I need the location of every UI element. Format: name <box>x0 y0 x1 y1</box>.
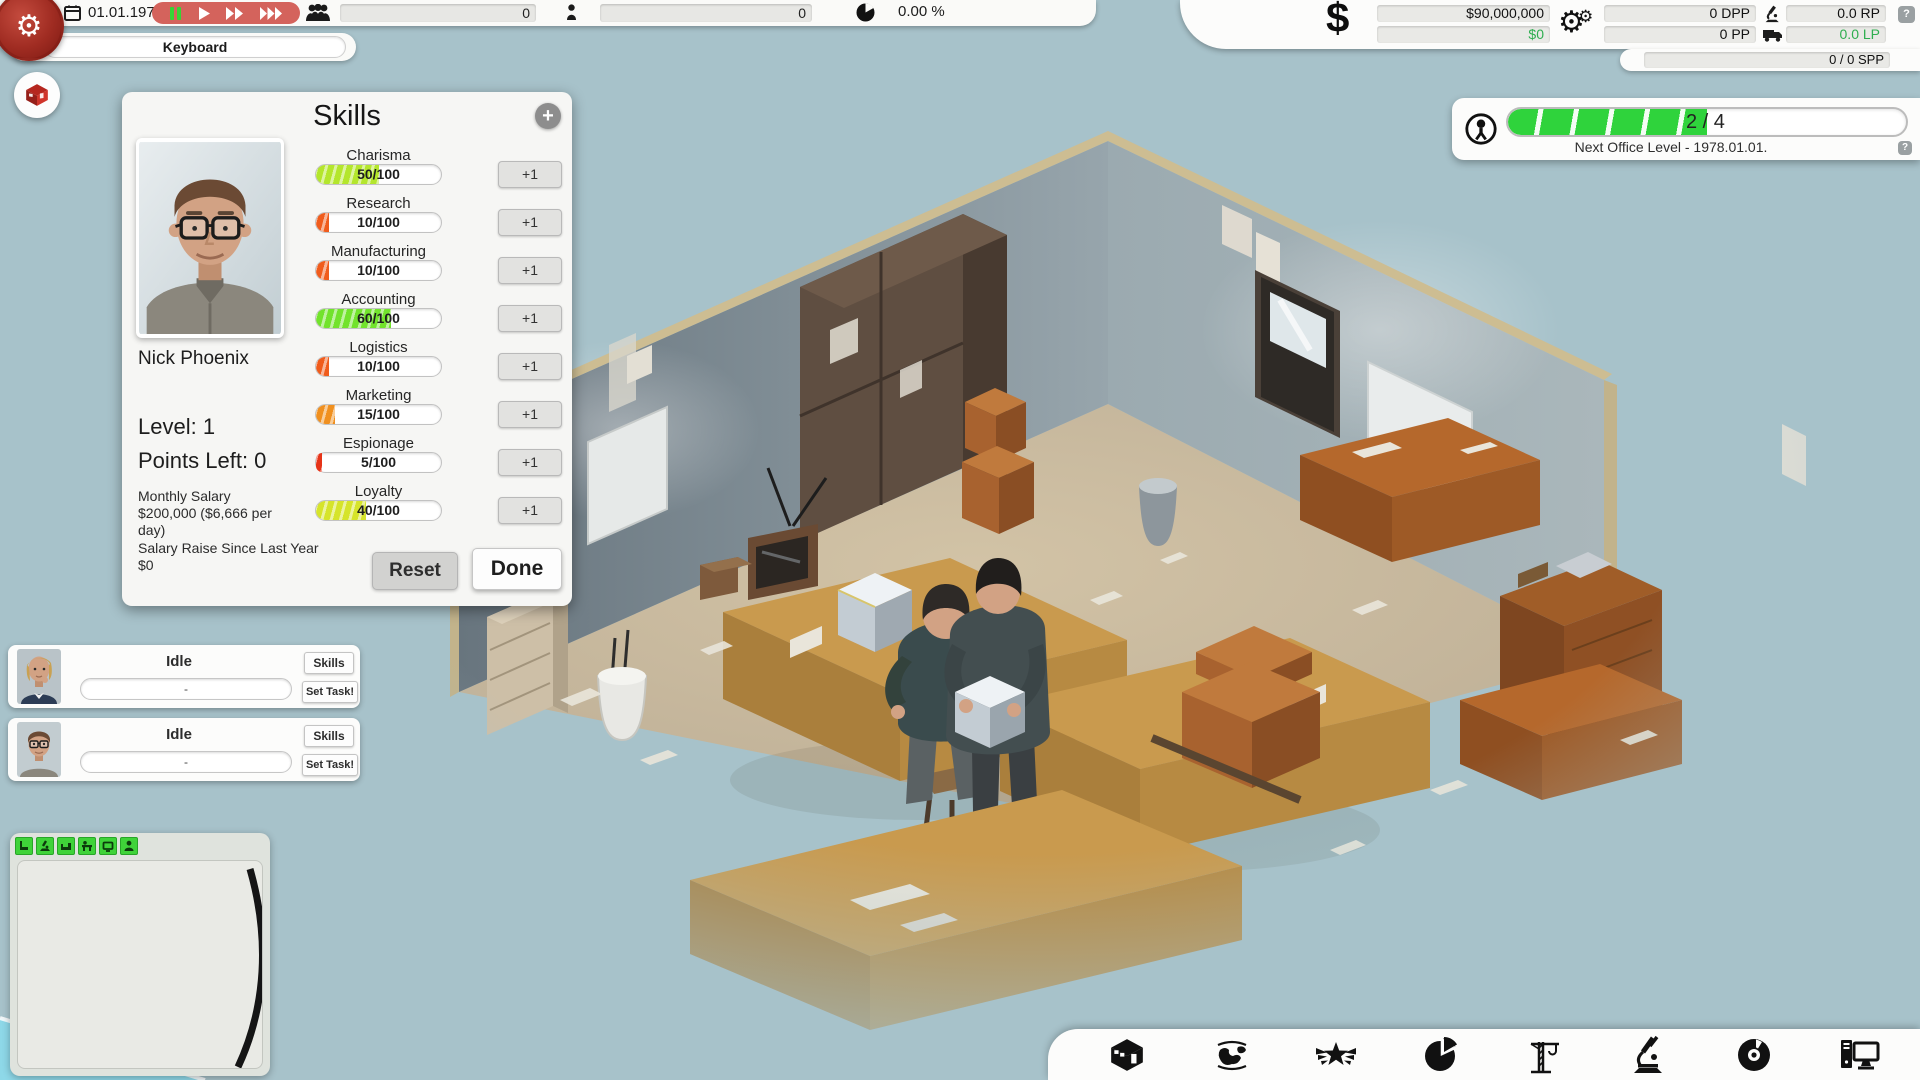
employee-avatar <box>17 649 61 704</box>
skill-name: Accounting <box>315 291 442 308</box>
spp-strip: 0 / 0 SPP <box>1620 49 1920 71</box>
skill-row: Charisma 50/100 +1 <box>122 147 572 193</box>
minimap-furniture-icon[interactable] <box>15 837 33 855</box>
office-level-progress-fill <box>1508 109 1707 135</box>
set-task-button[interactable]: Set Task! <box>302 754 358 776</box>
skill-increment-button[interactable]: +1 <box>498 305 562 332</box>
dock-world-map-button[interactable] <box>1211 1034 1253 1076</box>
skill-increment-button[interactable]: +1 <box>498 257 562 284</box>
next-office-level-text: Next Office Level - 1978.01.01. <box>1452 139 1890 155</box>
pie-chart-icon <box>1422 1036 1460 1074</box>
gear-icon: ⚙ <box>16 9 43 44</box>
rp-field: 0.0 RP <box>1786 5 1886 22</box>
salary-raise-block: Salary Raise Since Last Year $0 <box>138 540 368 574</box>
bottom-dock <box>1048 1029 1920 1080</box>
time-control-bar: 01.01.1972 0 0 0.00 % <box>0 0 1096 26</box>
skill-name: Logistics <box>315 339 442 356</box>
skill-row: Manufacturing 10/100 +1 <box>122 243 572 289</box>
skill-bar: 5/100 <box>315 452 442 473</box>
office-level-panel: 2 / 4 Next Office Level - 1978.01.01. ? <box>1452 98 1920 160</box>
play-button[interactable] <box>198 7 210 20</box>
skill-increment-button[interactable]: +1 <box>498 209 562 236</box>
skill-bar: 10/100 <box>315 260 442 281</box>
skill-increment-button[interactable]: +1 <box>498 497 562 524</box>
skill-bar: 60/100 <box>315 308 442 329</box>
employee-count-field: 0 <box>340 4 536 22</box>
skills-panel-title: Skills <box>122 100 572 133</box>
minimap-staff-icon[interactable] <box>120 837 138 855</box>
done-button[interactable]: Done <box>472 548 562 590</box>
dock-company-button[interactable] <box>1106 1034 1148 1076</box>
skill-name: Marketing <box>315 387 442 404</box>
minimap-view[interactable] <box>17 860 263 1069</box>
gears-icon: ⚙⚙ <box>1558 8 1585 38</box>
minimap-research-icon[interactable] <box>36 837 54 855</box>
salary-raise-label: Salary Raise Since Last Year <box>138 540 368 557</box>
research-project-pill[interactable]: Keyboard <box>44 36 346 58</box>
office-level-progress-bar: 2 / 4 <box>1506 107 1908 137</box>
cash-flow-field: $0 <box>1377 26 1550 43</box>
dock-research-button[interactable] <box>1629 1034 1671 1076</box>
fastest-forward-button[interactable] <box>260 7 282 20</box>
dollar-icon: $ <box>1326 0 1349 42</box>
salary-raise-value: $0 <box>138 557 368 574</box>
skills-panel: Skills + Nick Phoenix Level: 1 Po <box>122 92 572 606</box>
skill-name: Manufacturing <box>315 243 442 260</box>
office-help-button[interactable]: ? <box>1898 141 1912 155</box>
skill-name: Loyalty <box>315 483 442 500</box>
crane-icon <box>1525 1036 1565 1074</box>
minimap-tv-icon[interactable] <box>99 837 117 855</box>
company-button[interactable] <box>14 72 60 118</box>
computer-icon <box>1838 1036 1880 1074</box>
office-level-progress-label: 2 / 4 <box>1686 111 1725 134</box>
employee-avatar <box>17 722 61 777</box>
fast-forward-button[interactable] <box>226 7 243 20</box>
world-map-icon <box>1212 1037 1252 1073</box>
minimap-couch-icon[interactable] <box>57 837 75 855</box>
skill-name: Research <box>315 195 442 212</box>
dock-products-button[interactable] <box>1733 1034 1775 1076</box>
finance-panel: $ $90,000,000 $0 ⚙⚙ 0 DPP 0 PP 0.0 RP 0.… <box>1180 0 1920 49</box>
minimap-panel[interactable] <box>10 833 270 1076</box>
employee-skills-button[interactable]: Skills <box>304 725 354 747</box>
skill-row: Marketing 15/100 +1 <box>122 387 572 433</box>
skill-increment-button[interactable]: +1 <box>498 401 562 428</box>
skill-bar: 40/100 <box>315 500 442 521</box>
red-building-icon <box>24 82 50 108</box>
skill-row: Logistics 10/100 +1 <box>122 339 572 385</box>
skill-row: Research 10/100 +1 <box>122 195 572 241</box>
set-task-button[interactable]: Set Task! <box>302 681 358 703</box>
skill-name: Espionage <box>315 435 442 452</box>
skill-bar: 10/100 <box>315 356 442 377</box>
pause-button[interactable] <box>170 7 181 20</box>
skill-bar: 15/100 <box>315 404 442 425</box>
dock-market-stats-button[interactable] <box>1420 1034 1462 1076</box>
dock-achievements-button[interactable] <box>1315 1034 1357 1076</box>
skill-bar: 10/100 <box>315 212 442 233</box>
crowd-icon <box>306 4 330 21</box>
disc-icon <box>1735 1036 1773 1074</box>
minimap-desk-icon[interactable] <box>78 837 96 855</box>
building-icon <box>1108 1036 1146 1074</box>
game-speed-controls <box>152 2 300 24</box>
research-flask-icon <box>1764 5 1782 23</box>
task-dropdown[interactable]: - <box>80 751 292 773</box>
skill-row: Loyalty 40/100 +1 <box>122 483 572 529</box>
pawn-icon <box>566 4 577 21</box>
microscope-icon <box>1631 1035 1669 1075</box>
fans-count-field: 0 <box>600 4 812 22</box>
skill-name: Charisma <box>315 147 442 164</box>
pp-field: 0 PP <box>1604 26 1756 43</box>
winged-star-icon <box>1315 1038 1357 1072</box>
skill-increment-button[interactable]: +1 <box>498 449 562 476</box>
dpp-field: 0 DPP <box>1604 5 1756 22</box>
calendar-icon <box>64 5 81 21</box>
employee-card[interactable]: Idle - Skills Set Task! <box>8 645 360 708</box>
skill-bar: 50/100 <box>315 164 442 185</box>
balance-field: $90,000,000 <box>1377 5 1550 22</box>
employee-card[interactable]: Idle - Skills Set Task! <box>8 718 360 781</box>
add-points-button[interactable]: + <box>535 103 561 129</box>
truck-icon <box>1763 28 1783 42</box>
employee-skills-button[interactable]: Skills <box>304 652 354 674</box>
spp-field: 0 / 0 SPP <box>1644 52 1890 68</box>
minimap-filter-icons <box>15 837 138 855</box>
lp-field: 0.0 LP <box>1786 26 1886 43</box>
skill-row: Accounting 60/100 +1 <box>122 291 572 337</box>
employee-status: Idle <box>68 653 290 670</box>
skill-row: Espionage 5/100 +1 <box>122 435 572 481</box>
skill-increment-button[interactable]: +1 <box>498 353 562 380</box>
skill-increment-button[interactable]: +1 <box>498 161 562 188</box>
dock-construction-button[interactable] <box>1524 1034 1566 1076</box>
reset-button[interactable]: Reset <box>372 552 458 590</box>
pie-icon <box>856 3 875 22</box>
finance-help-button[interactable]: ? <box>1898 6 1915 23</box>
task-dropdown[interactable]: - <box>80 678 292 700</box>
market-share-value: 0.00 % <box>898 3 945 20</box>
dock-hardware-button[interactable] <box>1838 1034 1880 1076</box>
employee-status: Idle <box>68 726 290 743</box>
